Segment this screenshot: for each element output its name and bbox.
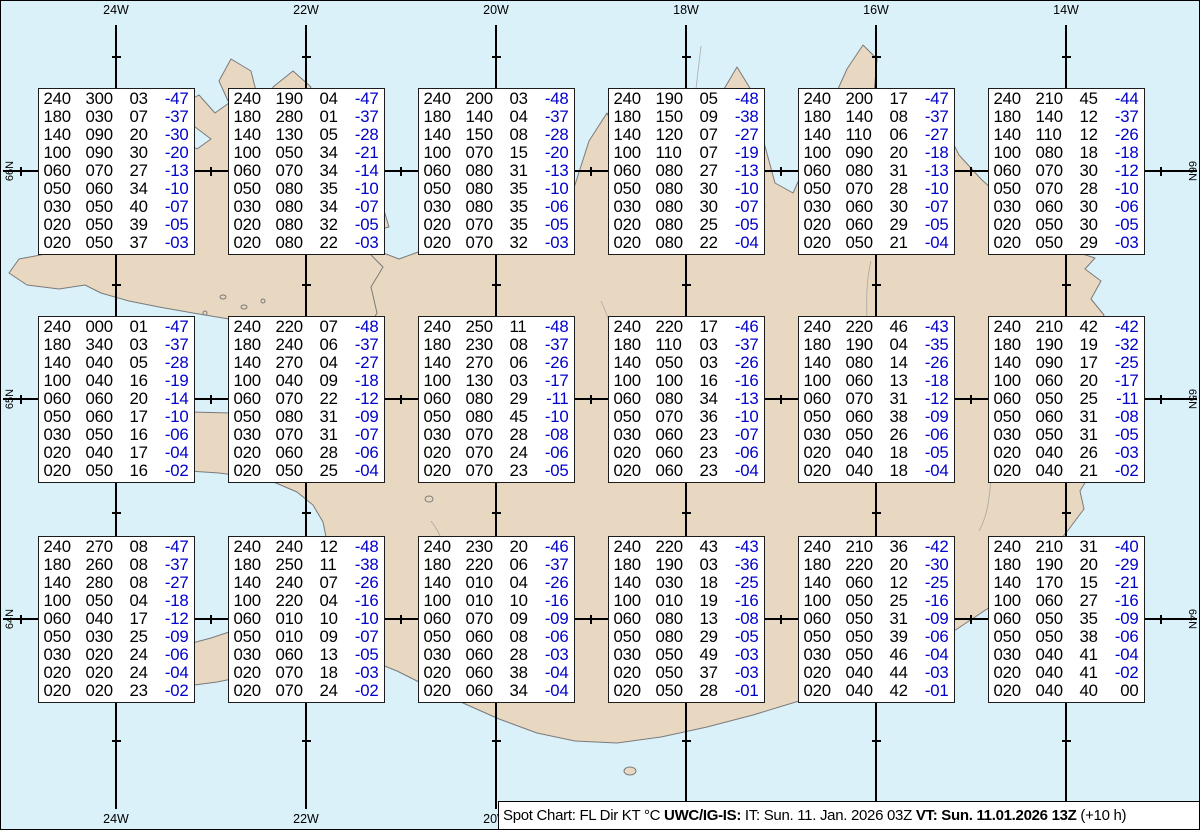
temp-value: -16: [542, 592, 569, 610]
fl-value: 020: [614, 234, 656, 252]
lat-minor-tick: [112, 740, 121, 742]
temp-value: -28: [542, 126, 569, 144]
lon-minor-tick: [210, 615, 212, 624]
temp-value: -12: [922, 390, 949, 408]
temp-value: 00: [1112, 682, 1139, 700]
dir-value: 150: [656, 108, 700, 126]
dir-value: 060: [1036, 592, 1080, 610]
dir-value: 050: [846, 426, 890, 444]
kt-value: 35: [1080, 610, 1112, 628]
temp-value: -37: [542, 556, 569, 574]
legend-source: UWC/IG-IS:: [664, 807, 741, 824]
temp-value: -26: [732, 354, 759, 372]
fl-value: 240: [614, 538, 656, 556]
lat-minor-tick: [682, 56, 691, 58]
kt-value: 13: [890, 372, 922, 390]
dir-value: 080: [276, 180, 320, 198]
fl-value: 180: [424, 108, 466, 126]
temp-value: -03: [542, 646, 569, 664]
kt-value: 28: [1080, 180, 1112, 198]
spot-row: 02008025-05: [614, 216, 759, 234]
fl-value: 100: [994, 592, 1036, 610]
spot-row: 06007009-09: [424, 610, 569, 628]
kt-value: 22: [320, 390, 352, 408]
spot-row: 02005016-02: [44, 462, 189, 480]
temp-value: -02: [1112, 462, 1139, 480]
spot-row: 02007023-05: [424, 462, 569, 480]
kt-value: 03: [700, 336, 732, 354]
temp-value: -05: [1112, 426, 1139, 444]
spot-box-64N-24W: 24027008-4718026008-3714028008-271000500…: [38, 536, 195, 703]
dir-value: 020: [86, 682, 130, 700]
kt-value: 01: [130, 318, 162, 336]
dir-value: 070: [1036, 180, 1080, 198]
kt-value: 12: [1080, 126, 1112, 144]
fl-value: 060: [424, 162, 466, 180]
lat-minor-tick: [1062, 512, 1071, 514]
spot-row: 18019020-29: [994, 556, 1139, 574]
spot-row: 10001019-16: [614, 592, 759, 610]
dir-value: 050: [1036, 234, 1080, 252]
fl-value: 030: [44, 198, 86, 216]
spot-row: 06007034-14: [234, 162, 379, 180]
temp-value: -37: [732, 336, 759, 354]
temp-value: -05: [162, 216, 189, 234]
kt-value: 31: [510, 162, 542, 180]
dir-value: 300: [86, 90, 130, 108]
kt-value: 26: [1080, 444, 1112, 462]
fl-value: 050: [804, 408, 846, 426]
lon-minor-tick: [400, 615, 402, 624]
temp-value: -42: [922, 538, 949, 556]
dir-value: 190: [1036, 336, 1080, 354]
spot-row: 02004017-04: [44, 444, 189, 462]
temp-value: -04: [732, 234, 759, 252]
fl-value: 050: [804, 628, 846, 646]
spot-row: 0200404000: [994, 682, 1139, 700]
lat-minor-tick: [302, 740, 311, 742]
temp-value: -03: [162, 234, 189, 252]
dir-value: 070: [276, 390, 320, 408]
temp-value: -02: [1112, 664, 1139, 682]
kt-value: 46: [890, 318, 922, 336]
dir-value: 080: [656, 390, 700, 408]
spot-row: 14011006-27: [804, 126, 949, 144]
kt-value: 35: [510, 216, 542, 234]
lat-minor-tick: [492, 284, 501, 286]
spot-box-64N-20W: 24023020-4618022006-3714001004-261000101…: [418, 536, 575, 703]
temp-value: -05: [542, 216, 569, 234]
temp-value: -05: [922, 444, 949, 462]
spot-row: 06008031-13: [424, 162, 569, 180]
fl-value: 030: [614, 198, 656, 216]
temp-value: -18: [1112, 144, 1139, 162]
spot-row: 03005026-06: [804, 426, 949, 444]
fl-value: 020: [804, 234, 846, 252]
kt-value: 09: [320, 628, 352, 646]
spot-row: 05007028-10: [994, 180, 1139, 198]
dir-value: 070: [276, 682, 320, 700]
temp-value: -04: [922, 234, 949, 252]
spot-row: 05005039-06: [804, 628, 949, 646]
temp-value: -05: [352, 216, 379, 234]
kt-value: 05: [130, 354, 162, 372]
temp-value: -16: [732, 372, 759, 390]
fl-value: 030: [994, 646, 1036, 664]
dir-value: 050: [1036, 610, 1080, 628]
fl-value: 050: [994, 628, 1036, 646]
kt-value: 08: [890, 108, 922, 126]
kt-value: 28: [700, 682, 732, 700]
temp-value: -05: [352, 646, 379, 664]
spot-row: 14009020-30: [44, 126, 189, 144]
temp-value: -06: [922, 426, 949, 444]
kt-value: 07: [130, 108, 162, 126]
fl-value: 180: [804, 556, 846, 574]
dir-value: 100: [656, 372, 700, 390]
temp-value: -03: [922, 664, 949, 682]
temp-value: -09: [352, 408, 379, 426]
fl-value: 240: [44, 90, 86, 108]
spot-row: 18024006-37: [234, 336, 379, 354]
lon-minor-tick: [1160, 395, 1162, 404]
spot-row: 24022046-43: [804, 318, 949, 336]
temp-value: -09: [922, 610, 949, 628]
kt-value: 07: [700, 144, 732, 162]
kt-value: 28: [320, 444, 352, 462]
lon-label-top: 24W: [103, 4, 129, 17]
temp-value: -26: [1112, 126, 1139, 144]
dir-value: 050: [276, 462, 320, 480]
fl-value: 240: [994, 538, 1036, 556]
temp-value: -13: [732, 390, 759, 408]
kt-value: 18: [890, 444, 922, 462]
kt-value: 14: [890, 354, 922, 372]
spot-row: 02004042-01: [804, 682, 949, 700]
temp-value: -44: [1112, 90, 1139, 108]
temp-value: -37: [162, 556, 189, 574]
kt-value: 34: [320, 162, 352, 180]
kt-value: 16: [130, 426, 162, 444]
spot-row: 02007018-03: [234, 664, 379, 682]
dir-value: 040: [846, 444, 890, 462]
temp-value: -04: [732, 462, 759, 480]
fl-value: 020: [994, 444, 1036, 462]
spot-row: 05006034-10: [44, 180, 189, 198]
fl-value: 020: [44, 664, 86, 682]
temp-value: -04: [922, 462, 949, 480]
fl-value: 100: [804, 372, 846, 390]
fl-value: 240: [804, 538, 846, 556]
dir-value: 050: [1036, 628, 1080, 646]
kt-value: 16: [700, 372, 732, 390]
island: [203, 311, 207, 315]
dir-value: 070: [466, 462, 510, 480]
spot-box-65N-22W: 24022007-4818024006-3714027004-271000400…: [228, 316, 385, 483]
dir-value: 060: [466, 682, 510, 700]
spot-row: 24020003-48: [424, 90, 569, 108]
temp-value: -06: [732, 444, 759, 462]
kt-value: 23: [130, 682, 162, 700]
fl-value: 050: [234, 628, 276, 646]
dir-value: 080: [656, 162, 700, 180]
kt-value: 31: [1080, 426, 1112, 444]
spot-row: 06007022-12: [234, 390, 379, 408]
fl-value: 240: [424, 538, 466, 556]
spot-row: 05006031-08: [994, 408, 1139, 426]
fl-value: 180: [424, 556, 466, 574]
kt-value: 45: [510, 408, 542, 426]
temp-value: -47: [162, 90, 189, 108]
temp-value: -37: [922, 108, 949, 126]
island: [425, 496, 433, 502]
dir-value: 060: [86, 408, 130, 426]
fl-value: 020: [44, 462, 86, 480]
dir-value: 140: [846, 108, 890, 126]
dir-value: 210: [1036, 318, 1080, 336]
dir-value: 070: [466, 426, 510, 444]
spot-row: 14008014-26: [804, 354, 949, 372]
fl-value: 240: [804, 90, 846, 108]
fl-value: 020: [234, 462, 276, 480]
kt-value: 25: [890, 592, 922, 610]
temp-value: -35: [922, 336, 949, 354]
fl-value: 020: [994, 216, 1036, 234]
spot-row: 10009030-20: [44, 144, 189, 162]
spot-row: 24030003-47: [44, 90, 189, 108]
kt-value: 27: [700, 162, 732, 180]
spot-row: 10001010-16: [424, 592, 569, 610]
dir-value: 050: [1036, 426, 1080, 444]
kt-value: 08: [130, 574, 162, 592]
temp-value: -20: [162, 144, 189, 162]
temp-value: -25: [922, 574, 949, 592]
kt-value: 28: [510, 646, 542, 664]
fl-value: 100: [614, 592, 656, 610]
kt-value: 40: [1080, 682, 1112, 700]
lat-minor-tick: [302, 284, 311, 286]
spot-row: 03004041-04: [994, 646, 1139, 664]
dir-value: 220: [276, 592, 320, 610]
temp-value: -05: [1112, 216, 1139, 234]
kt-value: 30: [890, 198, 922, 216]
temp-value: -48: [542, 318, 569, 336]
spot-row: 02005039-05: [44, 216, 189, 234]
dir-value: 090: [86, 126, 130, 144]
fl-value: 030: [44, 426, 86, 444]
spot-row: 03008035-06: [424, 198, 569, 216]
temp-value: -07: [922, 198, 949, 216]
temp-value: -09: [922, 408, 949, 426]
spot-row: 06007027-13: [44, 162, 189, 180]
fl-value: 240: [994, 318, 1036, 336]
spot-row: 24023020-46: [424, 538, 569, 556]
spot-box-66N-16W: 24020017-4718014008-3714011006-271000902…: [798, 88, 955, 255]
dir-value: 110: [656, 144, 700, 162]
temp-value: -04: [922, 646, 949, 664]
fl-value: 240: [994, 90, 1036, 108]
fl-value: 020: [614, 664, 656, 682]
lat-minor-tick: [1062, 284, 1071, 286]
dir-value: 050: [846, 592, 890, 610]
kt-value: 06: [320, 336, 352, 354]
kt-value: 06: [890, 126, 922, 144]
fl-value: 100: [614, 372, 656, 390]
temp-value: -48: [352, 318, 379, 336]
spot-row: 24027008-47: [44, 538, 189, 556]
kt-value: 37: [130, 234, 162, 252]
fl-value: 030: [614, 426, 656, 444]
temp-value: -11: [1112, 390, 1139, 408]
temp-value: -48: [352, 538, 379, 556]
dir-value: 080: [656, 216, 700, 234]
temp-value: -17: [1112, 372, 1139, 390]
temp-value: -10: [542, 180, 569, 198]
spot-row: 02004041-02: [994, 664, 1139, 682]
fl-value: 180: [44, 108, 86, 126]
temp-value: -08: [732, 610, 759, 628]
spot-box-66N-24W: 24030003-4718003007-3714009020-301000903…: [38, 88, 195, 255]
dir-value: 060: [466, 646, 510, 664]
spot-row: 06006020-14: [44, 390, 189, 408]
fl-value: 240: [44, 538, 86, 556]
fl-value: 030: [994, 426, 1036, 444]
spot-row: 05007036-10: [614, 408, 759, 426]
fl-value: 050: [424, 628, 466, 646]
kt-value: 37: [700, 664, 732, 682]
kt-value: 35: [320, 180, 352, 198]
kt-value: 38: [510, 664, 542, 682]
dir-value: 200: [466, 90, 510, 108]
dir-value: 240: [276, 336, 320, 354]
fl-value: 100: [994, 372, 1036, 390]
kt-value: 01: [320, 108, 352, 126]
dir-value: 240: [276, 538, 320, 556]
temp-value: -25: [1112, 354, 1139, 372]
temp-value: -32: [1112, 336, 1139, 354]
dir-value: 040: [86, 610, 130, 628]
spot-row: 02005029-03: [994, 234, 1139, 252]
spot-row: 06008027-13: [614, 162, 759, 180]
fl-value: 100: [994, 144, 1036, 162]
temp-value: -28: [162, 354, 189, 372]
dir-value: 050: [86, 234, 130, 252]
kt-value: 08: [130, 538, 162, 556]
spot-box-64N-16W: 24021036-4218022020-3014006012-251000502…: [798, 536, 955, 703]
temp-value: -40: [1112, 538, 1139, 556]
fl-value: 060: [44, 162, 86, 180]
fl-value: 020: [424, 664, 466, 682]
fl-value: 100: [44, 372, 86, 390]
dir-value: 080: [846, 162, 890, 180]
temp-value: -10: [922, 180, 949, 198]
lat-minor-tick: [872, 740, 881, 742]
fl-value: 100: [44, 592, 86, 610]
spot-row: 02002024-04: [44, 664, 189, 682]
temp-value: -42: [1112, 318, 1139, 336]
fl-value: 240: [424, 318, 466, 336]
dir-value: 110: [656, 336, 700, 354]
spot-box-65N-14W: 24021042-4218019019-3214009017-251000602…: [988, 316, 1145, 483]
fl-value: 100: [234, 144, 276, 162]
fl-value: 020: [994, 664, 1036, 682]
temp-value: -48: [542, 90, 569, 108]
spot-row: 05005038-06: [994, 628, 1139, 646]
spot-row: 06005035-09: [994, 610, 1139, 628]
spot-row: 03005031-05: [994, 426, 1139, 444]
spot-row: 05006017-10: [44, 408, 189, 426]
spot-row: 10006020-17: [994, 372, 1139, 390]
temp-value: -10: [162, 180, 189, 198]
fl-value: 030: [614, 646, 656, 664]
spot-row: 06007031-12: [804, 390, 949, 408]
kt-value: 30: [1080, 198, 1112, 216]
fl-value: 020: [614, 216, 656, 234]
kt-value: 04: [130, 592, 162, 610]
kt-value: 17: [130, 610, 162, 628]
fl-value: 050: [994, 180, 1036, 198]
spot-row: 02006034-04: [424, 682, 569, 700]
dir-value: 050: [656, 646, 700, 664]
spot-row: 18014004-37: [424, 108, 569, 126]
temp-value: -12: [162, 610, 189, 628]
spot-row: 02006023-04: [614, 462, 759, 480]
fl-value: 140: [424, 574, 466, 592]
kt-value: 16: [130, 462, 162, 480]
lon-label-top: 18W: [673, 4, 699, 17]
spot-row: 18023008-37: [424, 336, 569, 354]
lat-minor-tick: [492, 512, 501, 514]
temp-value: -47: [922, 90, 949, 108]
temp-value: -10: [352, 180, 379, 198]
kt-value: 39: [130, 216, 162, 234]
temp-value: -36: [732, 556, 759, 574]
kt-value: 41: [1080, 646, 1112, 664]
kt-value: 34: [320, 198, 352, 216]
spot-row: 14024007-26: [234, 574, 379, 592]
temp-value: -12: [1112, 162, 1139, 180]
fl-value: 020: [424, 234, 466, 252]
temp-value: -10: [352, 610, 379, 628]
kt-value: 29: [700, 628, 732, 646]
spot-chart-map: 24W24W22W22W20W20W18W18W16W16W14W14W66N6…: [0, 0, 1200, 830]
temp-value: -04: [1112, 646, 1139, 664]
dir-value: 060: [276, 444, 320, 462]
lon-label-bottom: 24W: [103, 813, 129, 826]
spot-row: 02007024-06: [424, 444, 569, 462]
temp-value: -03: [732, 646, 759, 664]
temp-value: -19: [162, 372, 189, 390]
kt-value: 08: [510, 336, 542, 354]
dir-value: 170: [1036, 574, 1080, 592]
fl-value: 020: [234, 682, 276, 700]
fl-value: 020: [614, 444, 656, 462]
fl-value: 030: [234, 198, 276, 216]
fl-value: 140: [234, 354, 276, 372]
lat-label-left: 65N: [4, 389, 16, 409]
dir-value: 010: [466, 574, 510, 592]
fl-value: 100: [424, 144, 466, 162]
fl-value: 140: [804, 574, 846, 592]
kt-value: 31: [1080, 538, 1112, 556]
kt-value: 31: [320, 408, 352, 426]
kt-value: 20: [130, 390, 162, 408]
dir-value: 010: [276, 610, 320, 628]
temp-value: -25: [732, 574, 759, 592]
spot-row: 05001009-07: [234, 628, 379, 646]
temp-value: -03: [542, 234, 569, 252]
dir-value: 040: [86, 444, 130, 462]
